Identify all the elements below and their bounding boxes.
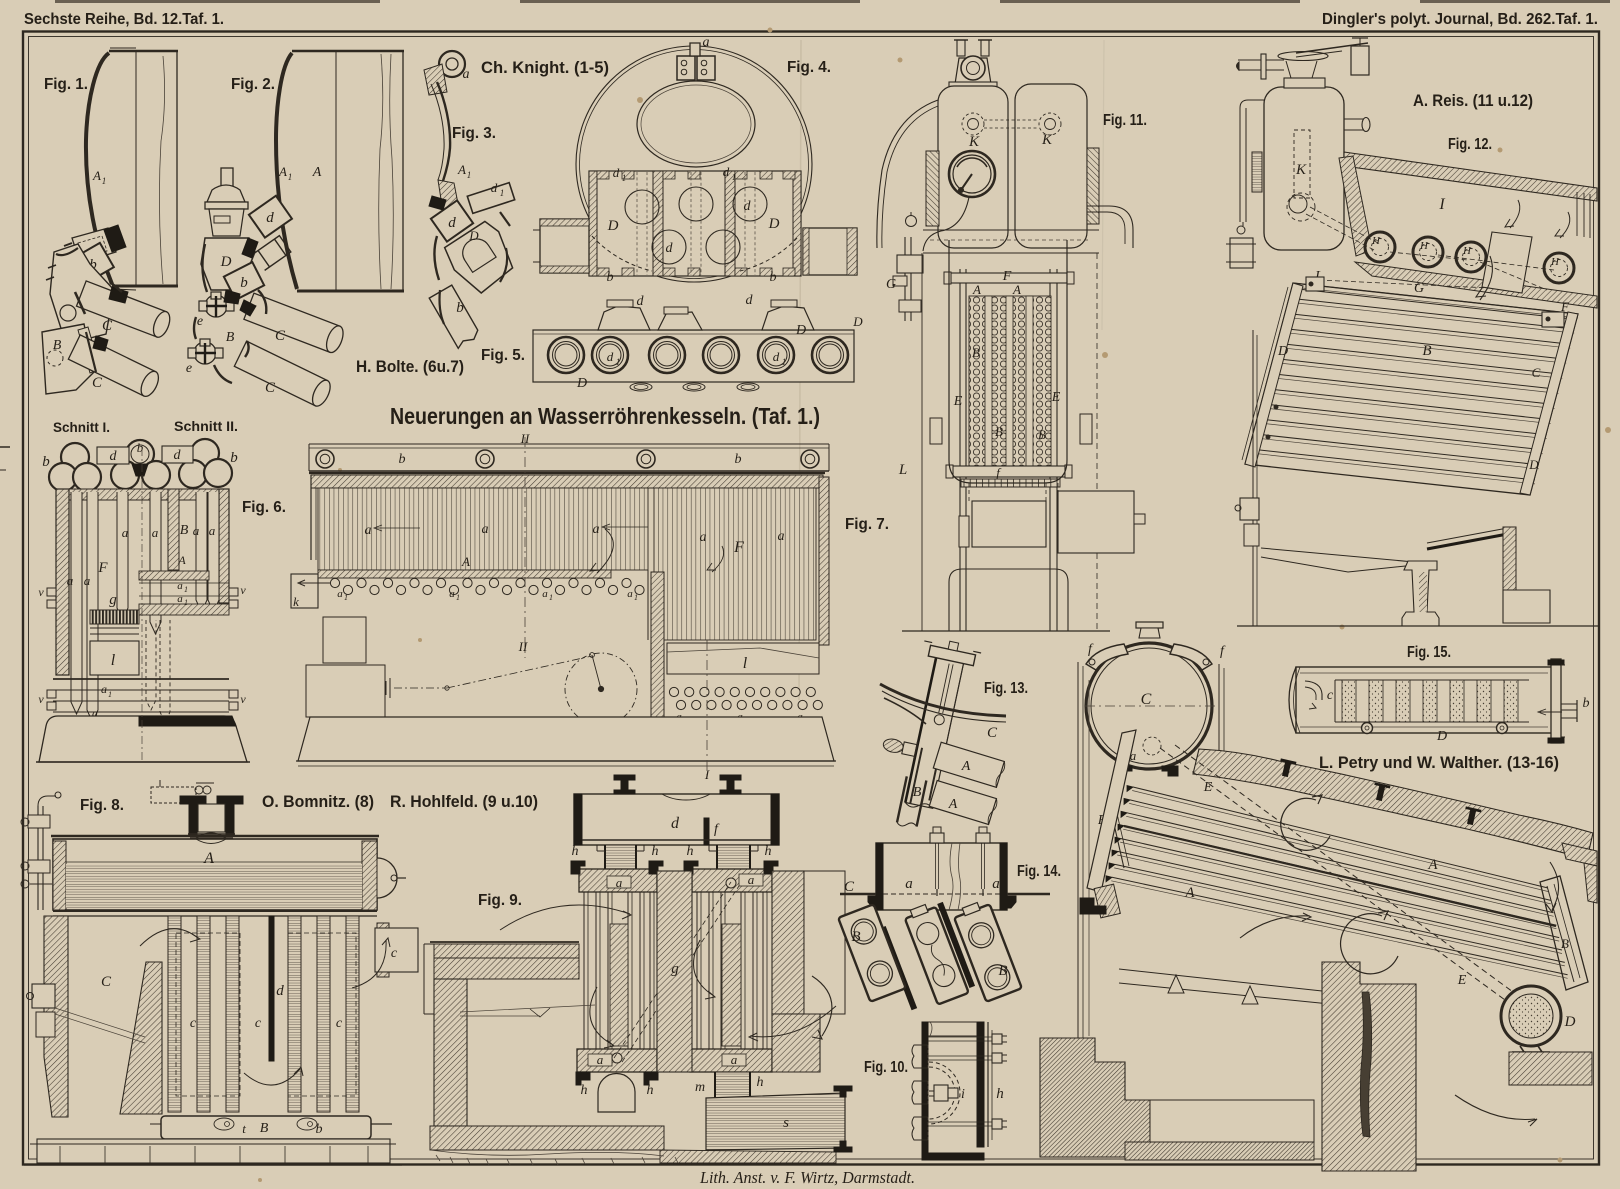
svg-text:c: c (190, 1016, 197, 1031)
svg-text:H: H (1550, 256, 1560, 268)
svg-text:a: a (177, 580, 183, 592)
svg-text:B: B (913, 785, 922, 800)
svg-text:a: a (463, 67, 470, 82)
svg-text:a: a (905, 876, 913, 892)
svg-text:a: a (122, 525, 129, 540)
svg-text:1: 1 (288, 172, 293, 182)
svg-text:Fig. 3.: Fig. 3. (452, 125, 496, 142)
svg-text:h: h (765, 844, 772, 859)
svg-text:v: v (38, 692, 44, 706)
svg-text:A: A (461, 554, 470, 569)
svg-text:D: D (795, 323, 806, 338)
svg-text:A. Reis. (11 u.12): A. Reis. (11 u.12) (1413, 91, 1533, 110)
svg-text:1: 1 (622, 173, 627, 183)
svg-text:h: h (652, 844, 659, 859)
svg-text:a: a (700, 530, 707, 545)
svg-text:B: B (260, 1121, 269, 1136)
svg-text:b: b (770, 270, 777, 285)
svg-text:v: v (240, 583, 246, 597)
svg-text:I: I (1438, 196, 1445, 213)
svg-text:l: l (743, 655, 748, 672)
svg-text:1: 1 (108, 690, 112, 699)
svg-text:a: a (542, 588, 548, 600)
svg-text:v: v (38, 585, 44, 599)
svg-text:Fig. 7.: Fig. 7. (845, 516, 889, 533)
svg-text:v: v (240, 692, 246, 706)
svg-text:C: C (1532, 365, 1541, 380)
svg-text:d: d (266, 210, 274, 226)
svg-text:C: C (844, 879, 855, 895)
svg-text:F: F (1002, 269, 1012, 284)
svg-text:h: h (581, 1083, 588, 1098)
svg-text:G: G (1414, 281, 1424, 296)
svg-text:a: a (177, 593, 183, 605)
svg-text:D: D (768, 216, 780, 232)
svg-text:d: d (666, 241, 674, 256)
svg-text:a: a (597, 1052, 604, 1067)
svg-text:a: a (84, 573, 91, 588)
svg-text:F: F (97, 560, 108, 576)
svg-text:Fig. 12.: Fig. 12. (1448, 136, 1492, 153)
svg-text:G: G (886, 277, 896, 292)
svg-text:F: F (733, 539, 744, 556)
svg-text:a: a (748, 872, 755, 887)
svg-text:c: c (1327, 688, 1334, 703)
svg-text:b: b (607, 270, 614, 285)
svg-text:1: 1 (549, 593, 553, 602)
svg-text:c: c (336, 1016, 343, 1031)
svg-text:Fig. 6.: Fig. 6. (242, 499, 286, 516)
svg-text:1: 1 (634, 593, 638, 602)
svg-text:B: B (53, 338, 62, 353)
svg-text:A: A (177, 553, 186, 567)
svg-text:C: C (101, 974, 112, 990)
svg-text:a: a (67, 573, 74, 588)
svg-text:H. Bolte. (6u.7): H. Bolte. (6u.7) (356, 357, 464, 376)
svg-text:C: C (92, 375, 103, 391)
svg-text:L. Petry und W. Walther. (13-1: L. Petry und W. Walther. (13-16) (1319, 753, 1559, 772)
svg-text:B: B (972, 345, 980, 360)
svg-text:h: h (687, 844, 694, 859)
svg-text:D: D (468, 228, 479, 243)
svg-text:1: 1 (782, 357, 787, 367)
svg-text:b: b (230, 450, 238, 466)
svg-text:s: s (783, 1115, 789, 1131)
svg-text:d: d (607, 349, 614, 364)
svg-text:h: h (572, 844, 579, 859)
svg-text:h: h (757, 1075, 764, 1090)
svg-text:B: B (851, 929, 860, 945)
svg-text:a: a (992, 876, 1000, 892)
svg-text:d: d (448, 215, 456, 231)
svg-text:E: E (1457, 973, 1467, 988)
svg-text:a: a (365, 523, 372, 538)
svg-text:b: b (240, 275, 248, 291)
svg-text:Fig. 9.: Fig. 9. (478, 892, 522, 909)
svg-text:Dingler's polyt. Journal, Bd: Dingler's polyt. Journal, Bd. 262.Taf. 1… (1322, 11, 1598, 28)
svg-text:m: m (695, 1080, 705, 1095)
svg-text:D: D (852, 314, 863, 329)
svg-text:a: a (731, 1052, 738, 1067)
svg-text:h: h (996, 1086, 1004, 1102)
svg-text:d: d (723, 164, 730, 179)
svg-text:Fig. 5.: Fig. 5. (481, 347, 525, 364)
svg-text:b: b (1583, 696, 1590, 711)
svg-text:K: K (1041, 132, 1053, 148)
svg-text:B: B (1561, 936, 1569, 951)
svg-text:D: D (1277, 344, 1288, 359)
svg-text:d: d (174, 448, 182, 463)
svg-text:a: a (627, 588, 633, 600)
svg-text:E: E (1203, 780, 1213, 795)
svg-text:O. Bomnitz. (8): O. Bomnitz. (8) (262, 792, 374, 811)
svg-text:d: d (276, 983, 284, 999)
svg-text:1: 1 (616, 357, 621, 367)
svg-text:D: D (1528, 457, 1539, 472)
svg-text:Fig. 10.: Fig. 10. (864, 1059, 908, 1076)
svg-text:A: A (457, 162, 466, 177)
svg-text:1: 1 (732, 172, 737, 182)
svg-text:B: B (180, 523, 189, 538)
svg-text:e: e (186, 361, 192, 376)
svg-text:Fig. 15.: Fig. 15. (1407, 644, 1451, 661)
svg-text:C: C (987, 725, 998, 741)
svg-text:D: D (1436, 729, 1447, 744)
svg-text:d: d (637, 294, 645, 309)
svg-text:A: A (1184, 885, 1195, 901)
svg-text:B: B (226, 330, 235, 345)
svg-text:t: t (242, 1121, 246, 1136)
svg-text:Schnitt II.: Schnitt II. (174, 419, 238, 434)
svg-text:A: A (961, 759, 971, 774)
svg-text:Sechste Reihe, Bd. 12.Taf. 1.: Sechste Reihe, Bd. 12.Taf. 1. (24, 11, 224, 28)
svg-text:A: A (203, 850, 214, 867)
svg-text:d: d (110, 449, 118, 464)
svg-text:II: II (520, 431, 530, 446)
svg-text:C: C (265, 380, 276, 396)
svg-text:Lith. Anst. v. F. Wirtz, Darms: Lith. Anst. v. F. Wirtz, Darmstadt. (699, 1168, 915, 1187)
svg-text:A: A (1012, 282, 1021, 297)
svg-text:C: C (102, 318, 113, 334)
svg-text:Fig. 2.: Fig. 2. (231, 76, 275, 93)
svg-text:d: d (773, 349, 780, 364)
svg-text:a: a (152, 525, 159, 540)
svg-text:1: 1 (467, 170, 472, 180)
svg-text:a: a (593, 522, 600, 537)
svg-text:1: 1 (456, 593, 460, 602)
svg-text:B: B (998, 963, 1007, 979)
svg-text:b: b (735, 452, 742, 467)
svg-text:F: F (1560, 299, 1570, 314)
svg-text:Fig. 1.: Fig. 1. (44, 76, 88, 93)
svg-text:a: a (209, 523, 216, 538)
svg-text:a: a (449, 588, 455, 600)
svg-text:e: e (197, 314, 203, 329)
svg-text:K: K (968, 134, 980, 150)
svg-text:A: A (278, 164, 287, 179)
svg-text:l: l (111, 652, 116, 669)
svg-text:R. Hohlfeld. (9 u.10): R. Hohlfeld. (9 u.10) (390, 792, 538, 811)
svg-text:a: a (778, 529, 785, 544)
svg-text:Ch. Knight. (1-5): Ch. Knight. (1-5) (481, 58, 609, 77)
svg-text:d: d (744, 199, 752, 214)
svg-text:Fig. 4.: Fig. 4. (787, 59, 831, 76)
svg-text:k: k (293, 594, 299, 609)
svg-text:A: A (92, 168, 101, 183)
svg-text:d: d (746, 293, 754, 308)
svg-text:D: D (607, 218, 619, 234)
svg-text:E: E (1051, 390, 1061, 405)
svg-text:Neuerungen an Wasserröhrenke: Neuerungen an Wasserröhrenkesseln. (Taf.… (390, 403, 820, 429)
svg-text:b: b (137, 440, 144, 455)
svg-text:c: c (391, 946, 398, 961)
svg-text:d: d (671, 815, 680, 832)
svg-text:1: 1 (344, 593, 348, 602)
svg-text:h: h (647, 1083, 654, 1098)
svg-text:D: D (576, 376, 587, 391)
svg-text:I: I (704, 767, 710, 782)
svg-text:H: H (1462, 245, 1472, 257)
svg-text:A: A (312, 165, 322, 180)
svg-text:B: B (995, 424, 1003, 439)
svg-text:H: H (1419, 240, 1429, 252)
svg-text:a: a (101, 682, 107, 696)
svg-text:K: K (1295, 162, 1307, 178)
svg-text:C: C (1141, 691, 1152, 708)
svg-text:i: i (961, 1087, 965, 1102)
svg-text:L: L (898, 462, 907, 478)
svg-text:H: H (1371, 235, 1381, 247)
svg-text:D: D (220, 254, 232, 270)
svg-text:g: g (671, 961, 679, 977)
svg-text:II: II (518, 639, 528, 654)
svg-text:a: a (193, 523, 200, 538)
svg-text:A: A (1427, 857, 1438, 873)
svg-text:b: b (399, 452, 406, 467)
svg-text:a: a (1130, 748, 1137, 763)
svg-text:1: 1 (184, 598, 188, 607)
svg-text:a: a (703, 35, 710, 50)
svg-text:Fig. 11.: Fig. 11. (1103, 112, 1147, 129)
svg-text:E: E (953, 394, 963, 409)
svg-text:A: A (948, 797, 958, 812)
svg-text:b: b (456, 300, 464, 316)
svg-text:a: a (616, 875, 623, 890)
svg-text:Schnitt I.: Schnitt I. (53, 420, 110, 435)
svg-text:b: b (42, 454, 50, 470)
svg-text:B: B (1422, 343, 1431, 359)
svg-text:A: A (972, 282, 981, 297)
svg-text:a: a (482, 522, 489, 537)
svg-text:1: 1 (102, 176, 107, 186)
svg-text:C: C (275, 328, 286, 344)
svg-text:1: 1 (500, 188, 505, 198)
svg-text:a: a (337, 588, 343, 600)
svg-text:Fig. 8.: Fig. 8. (80, 797, 124, 814)
svg-text:c: c (255, 1016, 262, 1031)
svg-text:Fig. 14.: Fig. 14. (1017, 863, 1061, 880)
svg-text:g: g (109, 592, 117, 608)
svg-text:D: D (1564, 1014, 1576, 1030)
svg-text:1: 1 (184, 585, 188, 594)
svg-text:Fig. 13.: Fig. 13. (984, 680, 1028, 697)
svg-text:b: b (316, 1122, 323, 1137)
svg-text:d: d (613, 165, 620, 180)
svg-text:d: d (491, 180, 498, 195)
svg-text:B: B (1038, 427, 1046, 442)
